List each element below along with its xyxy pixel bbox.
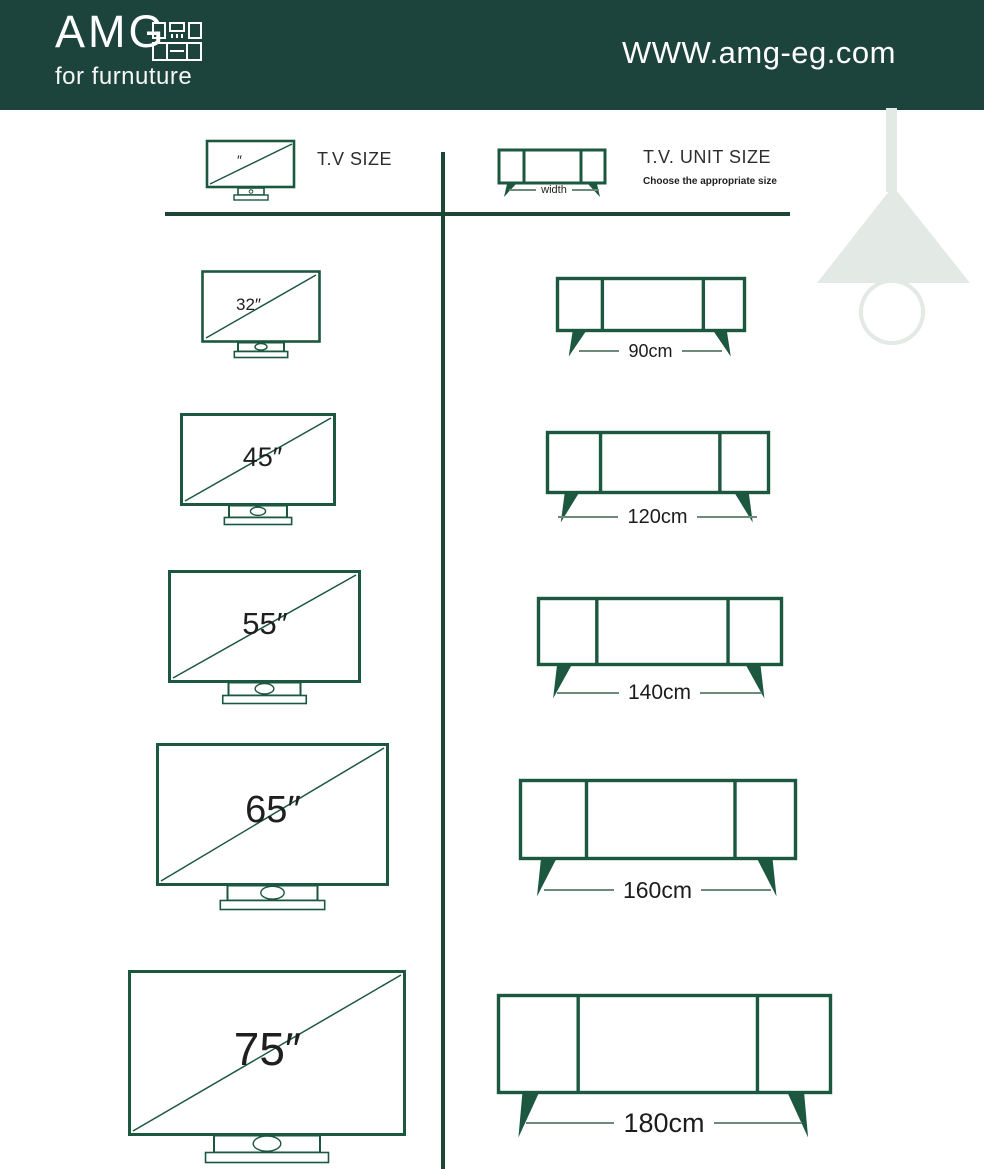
width-dash-left — [509, 189, 536, 191]
unit-width-label: 140cm — [628, 681, 691, 705]
tv-illustration — [200, 269, 325, 364]
unit-width-label-row: 90cm — [481, 336, 821, 366]
tv-size-label: 32″ — [169, 295, 329, 315]
unit-width-label: 120cm — [627, 506, 687, 529]
unit-dash-right — [682, 350, 722, 352]
tv-size-legend-icon: ″ — [205, 139, 299, 205]
lamp-shade — [817, 186, 970, 283]
lamp-bulb — [861, 281, 923, 343]
furniture-cabinet-icon — [152, 22, 202, 62]
unit-dash-right — [697, 516, 757, 518]
infographic-root: AMG for furnuture WWW.amg-eg.com — [0, 0, 984, 1169]
header-bar: AMG for furnuture WWW.amg-eg.com — [0, 0, 984, 110]
pendant-lamp-illustration — [808, 108, 984, 353]
logo-subtitle: for furnuture — [55, 63, 192, 91]
website-url: WWW.amg-eg.com — [622, 35, 896, 71]
unit-dash-left — [557, 692, 619, 694]
unit-width-label: 160cm — [623, 877, 692, 904]
vertical-divider — [441, 152, 445, 1169]
unit-dash-left — [526, 1122, 614, 1124]
tv-size-legend-mark: ″ — [237, 152, 242, 168]
tv-size-label: 45″ — [183, 442, 343, 473]
unit-width-legend: width — [495, 184, 613, 196]
tv-size-label: 75″ — [188, 1022, 348, 1076]
tv-size-label: 65″ — [193, 789, 353, 832]
unit-dash-right — [701, 889, 771, 891]
unit-dash-left — [579, 350, 619, 352]
unit-dash-left — [544, 889, 614, 891]
unit-dash-right — [714, 1122, 802, 1124]
unit-dash-left — [558, 516, 618, 518]
unit-width-label-row: 120cm — [488, 502, 828, 532]
unit-dash-right — [700, 692, 762, 694]
unit-width-label-row: 140cm — [490, 678, 830, 708]
unit-size-legend-label: T.V. UNIT SIZE — [643, 147, 771, 168]
logo-text: AMG — [55, 6, 167, 58]
unit-size-legend-sublabel: Choose the appropriate size — [643, 176, 777, 187]
unit-width-label-row: 160cm — [488, 875, 828, 905]
width-dash-right — [572, 189, 599, 191]
unit-width-label: 180cm — [623, 1108, 704, 1139]
tv-size-legend-label: T.V SIZE — [317, 149, 392, 170]
width-legend-label: width — [541, 184, 567, 196]
unit-width-label: 90cm — [628, 341, 672, 362]
horizontal-divider — [165, 212, 790, 216]
tv-size-label: 55″ — [185, 606, 345, 642]
lamp-cord — [886, 108, 897, 192]
unit-width-label-row: 180cm — [494, 1108, 834, 1138]
